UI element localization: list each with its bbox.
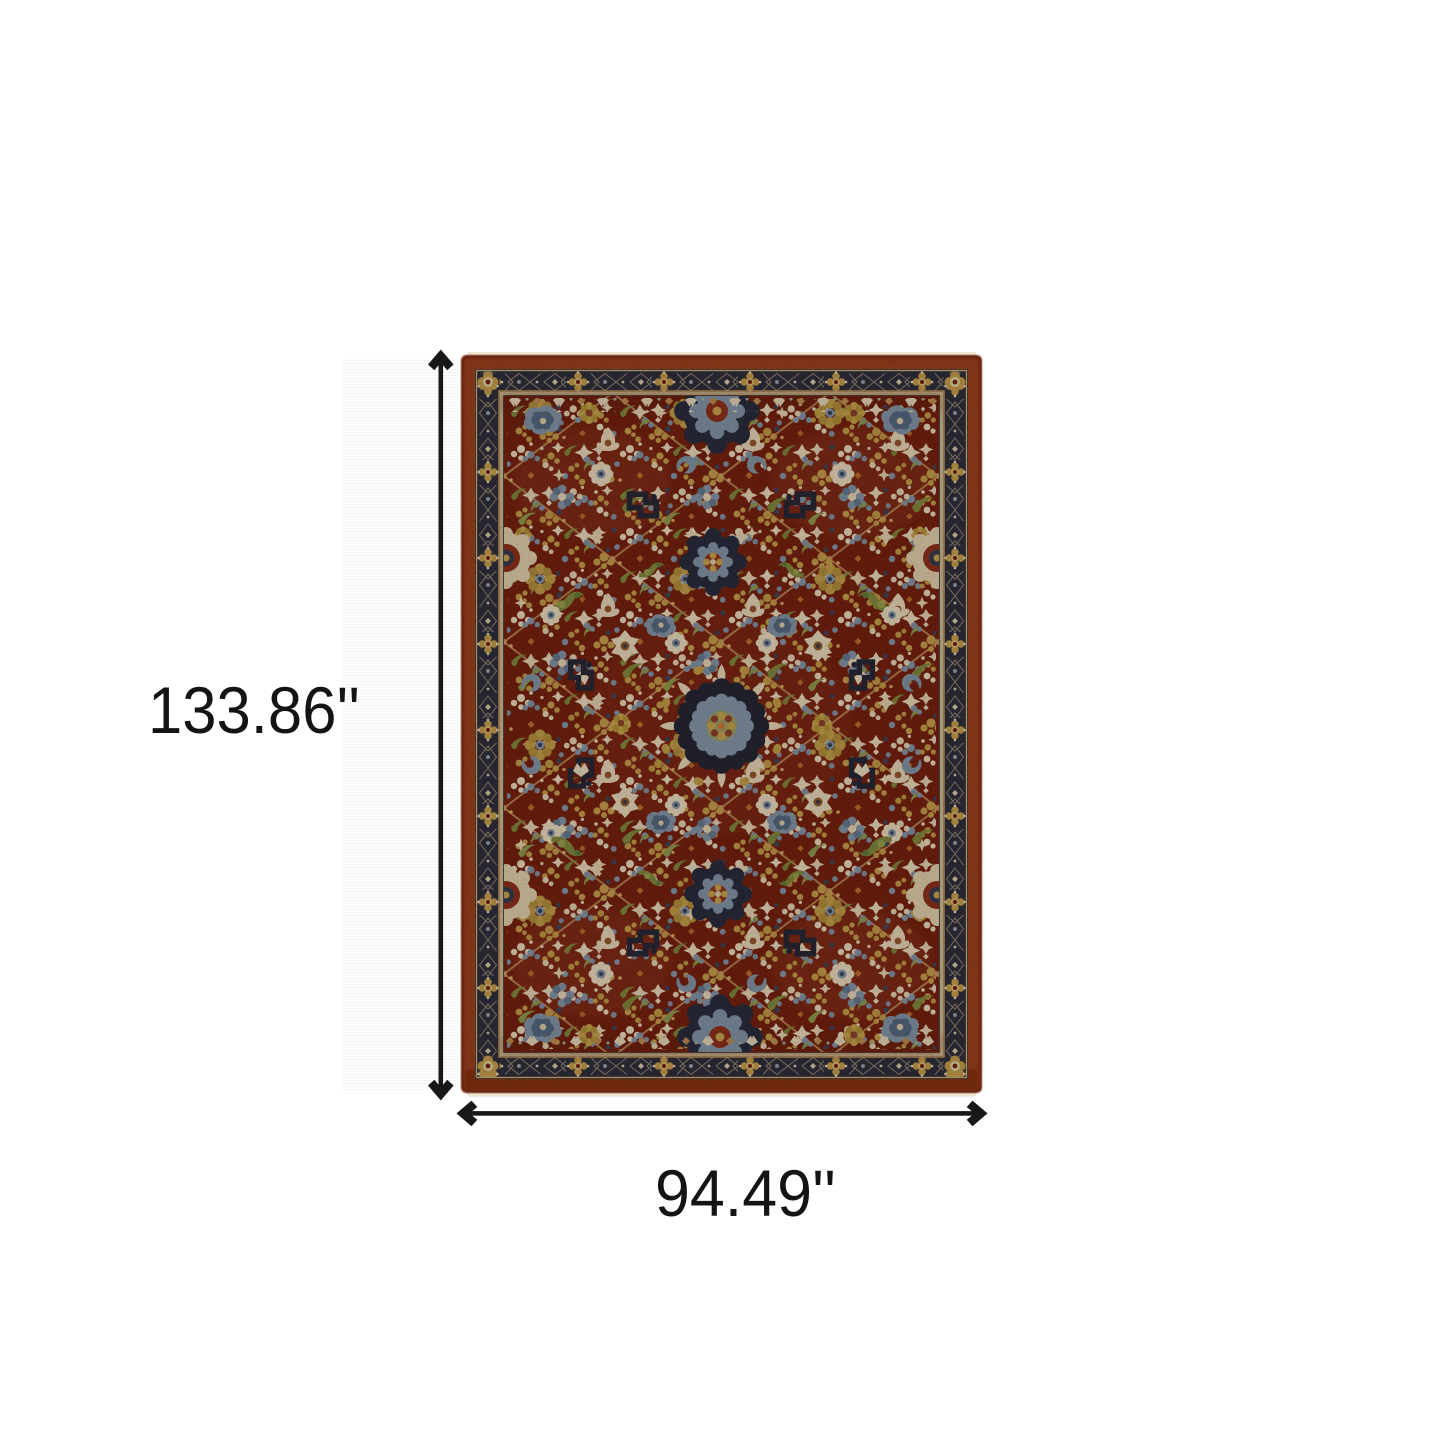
svg-text:94.49'': 94.49'' (655, 1156, 836, 1230)
svg-text:133.86'': 133.86'' (148, 673, 360, 747)
